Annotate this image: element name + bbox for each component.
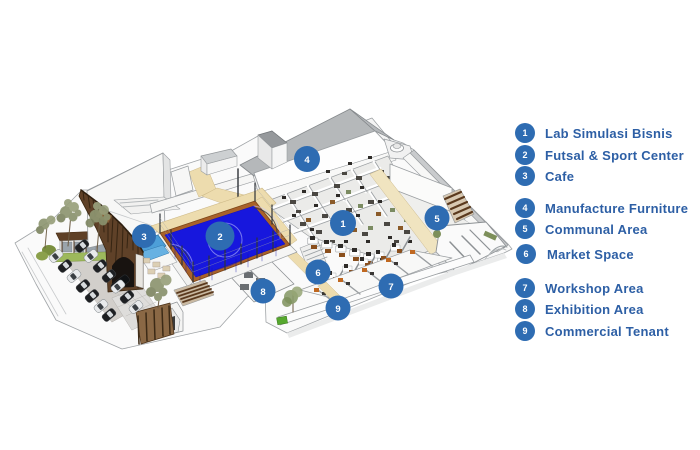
svg-text:9: 9 — [335, 304, 340, 315]
svg-text:4: 4 — [304, 155, 310, 166]
svg-text:2: 2 — [217, 232, 222, 243]
svg-text:6: 6 — [315, 268, 320, 279]
svg-text:7: 7 — [388, 282, 393, 293]
svg-text:8: 8 — [260, 287, 265, 298]
svg-text:5: 5 — [434, 214, 440, 225]
svg-text:1: 1 — [340, 219, 346, 230]
svg-text:3: 3 — [141, 232, 146, 243]
